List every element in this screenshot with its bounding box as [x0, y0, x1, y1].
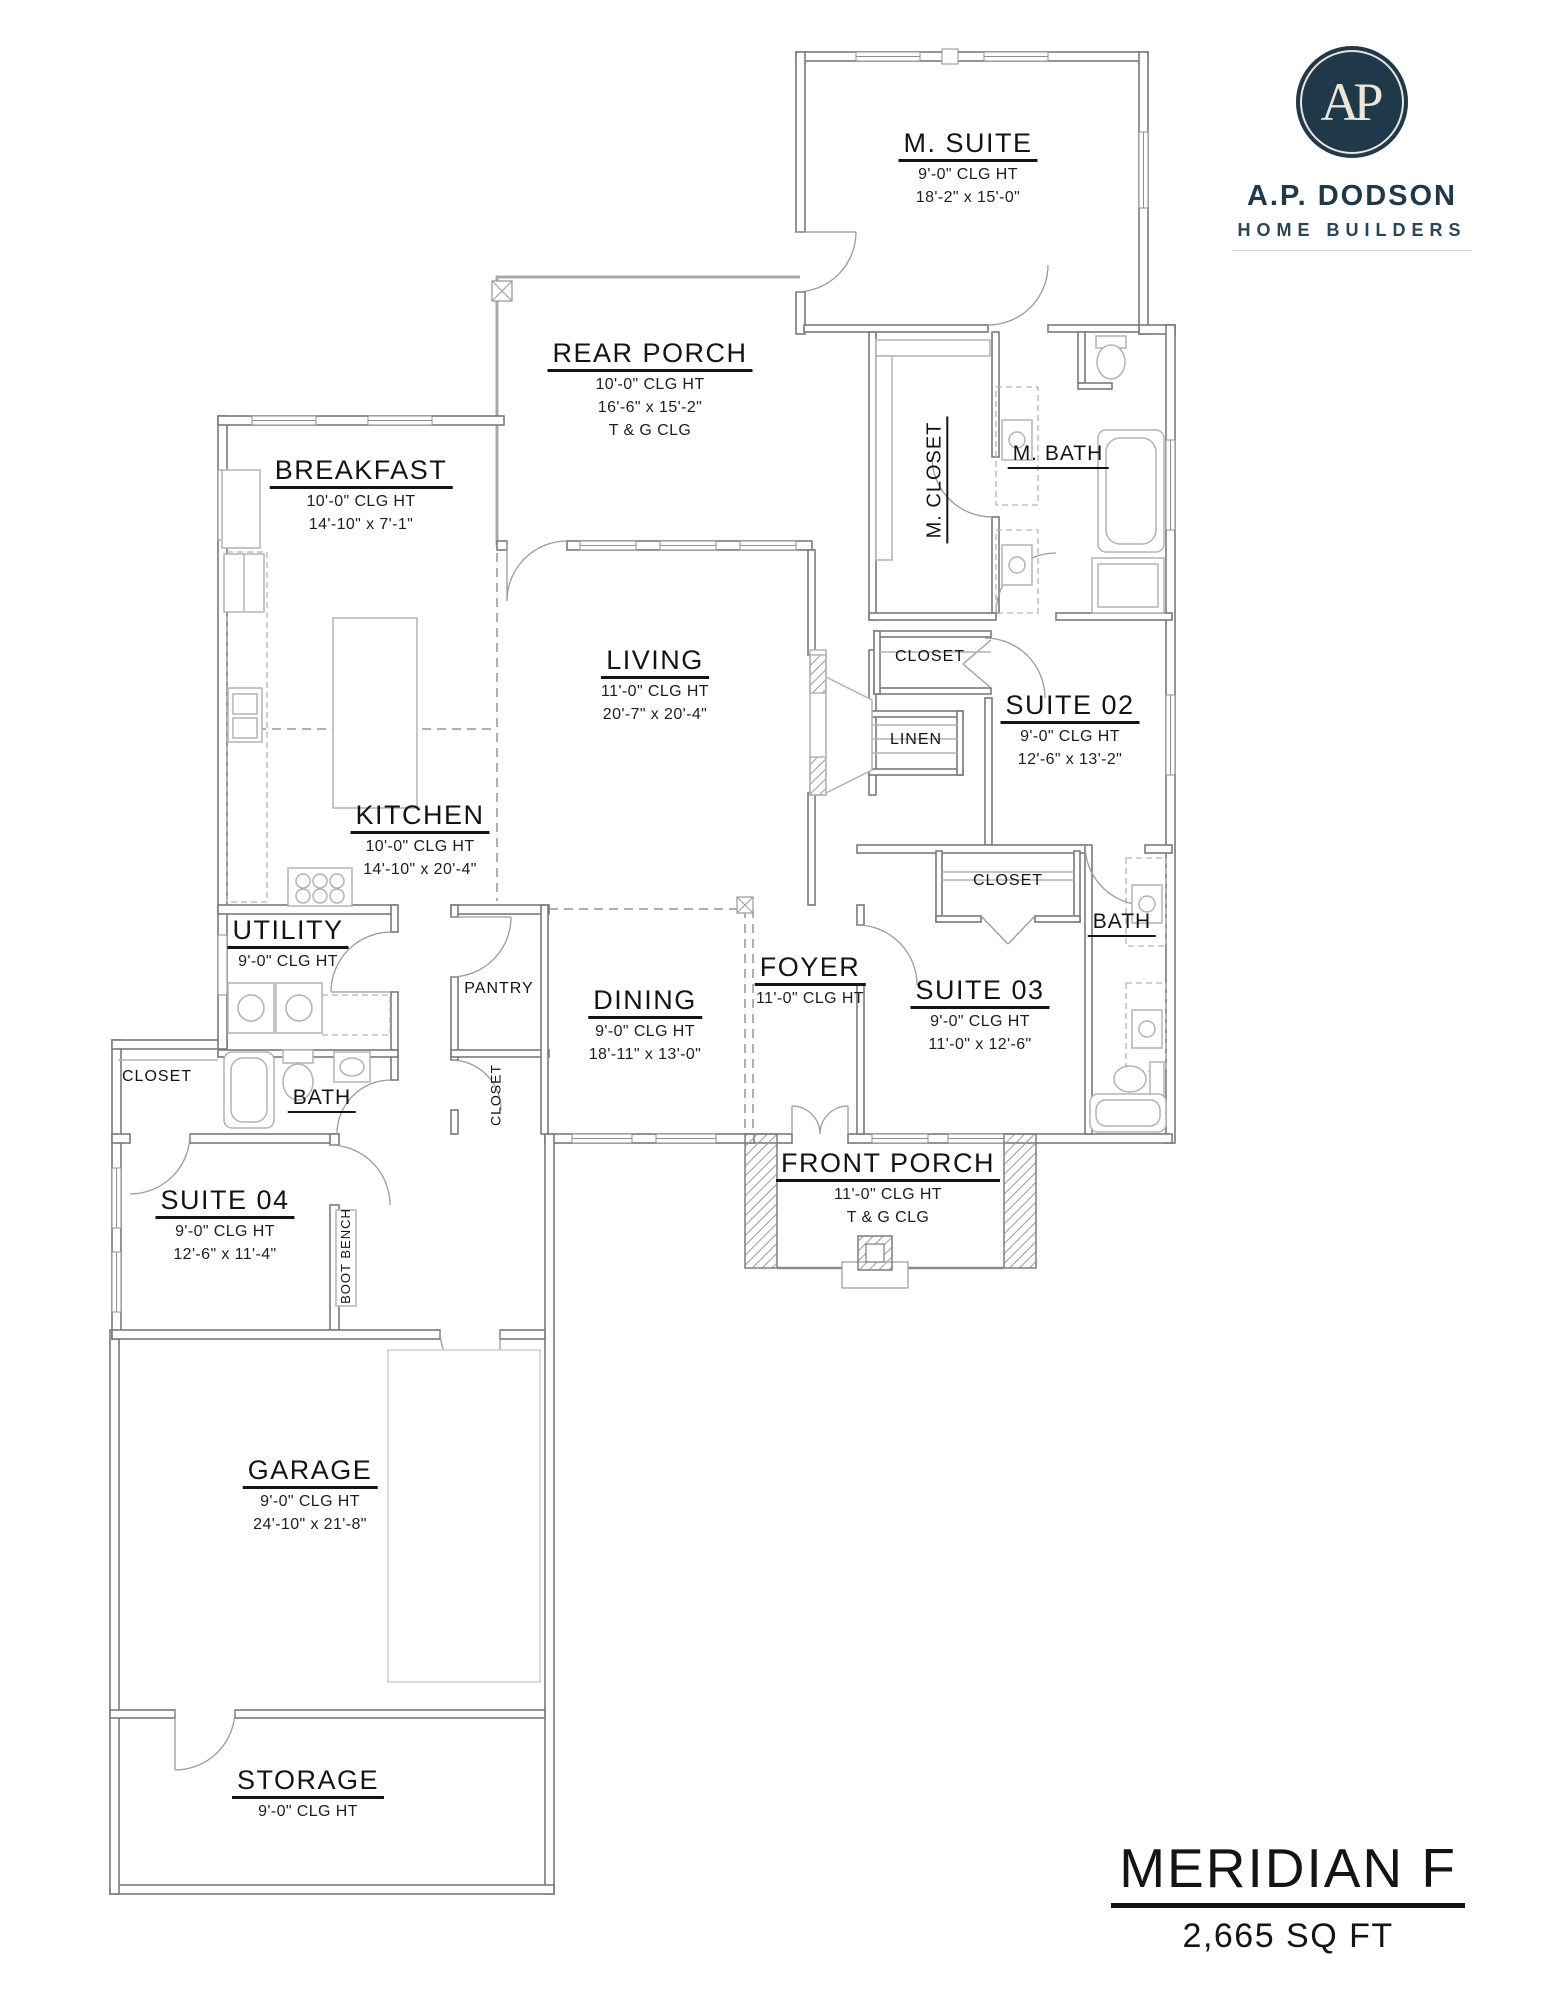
- room-label-suite02: SUITE 02 9'-0" CLG HT 12'-6" x 13'-2": [1000, 690, 1139, 770]
- room-title: DINING: [588, 985, 702, 1019]
- builder-name: A.P. DODSON: [1247, 180, 1457, 213]
- room-title: M. CLOSET: [923, 417, 948, 544]
- room-title: FOYER: [755, 952, 866, 986]
- room-label-closet-hall: CLOSET: [489, 1059, 506, 1131]
- room-title: CLOSET: [895, 648, 965, 666]
- builder-logo: AP A.P. DODSON HOME BUILDERS: [1232, 46, 1472, 251]
- builder-tagline: HOME BUILDERS: [1237, 220, 1466, 241]
- plan-title-block: MERIDIAN F 2,665 SQ FT: [1111, 1840, 1465, 1956]
- room-label-bath-suite04: BATH: [288, 1086, 356, 1113]
- ceiling-marker: [737, 897, 753, 913]
- room-label-suite04: SUITE 04 9'-0" CLG HT 12'-6" x 11'-4": [155, 1185, 294, 1265]
- plan-name: MERIDIAN F: [1111, 1840, 1465, 1908]
- room-label-m-bath: M. BATH: [1008, 442, 1109, 469]
- room-title: SUITE 03: [910, 975, 1049, 1009]
- logo-monogram: AP: [1320, 75, 1383, 129]
- room-title: STORAGE: [232, 1765, 384, 1799]
- plan-area: 2,665 SQ FT: [1183, 1917, 1394, 1956]
- room-label-closet-suite04: CLOSET: [122, 1068, 192, 1086]
- room-label-closet-suite03: CLOSET: [973, 872, 1043, 890]
- closet-shelf: [876, 340, 990, 356]
- fireplace: [826, 677, 872, 793]
- room-label-suite03: SUITE 03 9'-0" CLG HT 11'-0" x 12'-6": [910, 975, 1049, 1055]
- room-title: BOOT BENCH: [339, 1203, 355, 1309]
- room-label-boot-bench: BOOT BENCH: [339, 1203, 355, 1309]
- closet-shelf: [876, 356, 892, 560]
- room-label-linen: LINEN: [890, 731, 942, 749]
- room-title: SUITE 02: [1000, 690, 1139, 724]
- room-label-m-closet: M. CLOSET: [923, 417, 948, 544]
- room-label-kitchen: KITCHEN 10'-0" CLG HT 14'-10" x 20'-4": [350, 800, 489, 880]
- column-symbol: [492, 281, 512, 301]
- room-title: UTILITY: [227, 915, 348, 949]
- room-title: SUITE 04: [155, 1185, 294, 1219]
- room-label-front-porch: FRONT PORCH 11'-0" CLG HT T & G CLG: [776, 1148, 1000, 1228]
- walls-group: [110, 52, 1175, 1894]
- toilet-tank: [283, 1050, 313, 1063]
- room-label-garage: GARAGE 9'-0" CLG HT 24'-10" x 21'-8": [243, 1455, 378, 1535]
- room-title: M. BATH: [1008, 442, 1109, 469]
- room-title: CLOSET: [489, 1059, 506, 1131]
- breakfast-cabinet: [222, 470, 260, 548]
- garage-slab: [388, 1350, 540, 1682]
- room-label-m-suite: M. SUITE 9'-0" CLG HT 18'-2" x 15'-0": [898, 128, 1037, 208]
- room-label-utility: UTILITY 9'-0" CLG HT: [227, 915, 348, 972]
- room-title: REAR PORCH: [547, 338, 752, 372]
- room-title: CLOSET: [973, 872, 1043, 890]
- room-label-bath-suites: BATH: [1088, 910, 1156, 937]
- room-label-living: LIVING 11'-0" CLG HT 20'-7" x 20'-4": [601, 645, 709, 725]
- room-label-storage: STORAGE 9'-0" CLG HT: [232, 1765, 384, 1822]
- floor-plan-page: M. SUITE 9'-0" CLG HT 18'-2" x 15'-0" RE…: [0, 0, 1545, 2000]
- room-title: PANTRY: [464, 980, 533, 998]
- toilet: [1114, 1066, 1146, 1092]
- room-title: LINEN: [890, 731, 942, 749]
- kitchen-island: [333, 618, 417, 808]
- room-label-pantry: PANTRY: [464, 980, 533, 998]
- room-title: BREAKFAST: [270, 455, 453, 489]
- room-title: CLOSET: [122, 1068, 192, 1086]
- room-title: BATH: [1088, 910, 1156, 937]
- room-title: M. SUITE: [898, 128, 1037, 162]
- room-label-breakfast: BREAKFAST 10'-0" CLG HT 14'-10" x 7'-1": [270, 455, 453, 535]
- room-title: GARAGE: [243, 1455, 378, 1489]
- wc-toilet: [1097, 345, 1125, 379]
- room-label-rear-porch: REAR PORCH 10'-0" CLG HT 16'-6" x 15'-2"…: [547, 338, 752, 441]
- room-label-closet-suite02: CLOSET: [895, 648, 965, 666]
- room-title: BATH: [288, 1086, 356, 1113]
- logo-divider: [1232, 250, 1472, 251]
- room-label-dining: DINING 9'-0" CLG HT 18'-11" x 13'-0": [588, 985, 702, 1065]
- logo-circle-icon: AP: [1296, 46, 1408, 158]
- room-title: LIVING: [601, 645, 709, 679]
- room-title: KITCHEN: [350, 800, 489, 834]
- toilet-tank: [1150, 1062, 1164, 1096]
- room-title: FRONT PORCH: [776, 1148, 1000, 1182]
- room-label-foyer: FOYER 11'-0" CLG HT: [755, 952, 866, 1009]
